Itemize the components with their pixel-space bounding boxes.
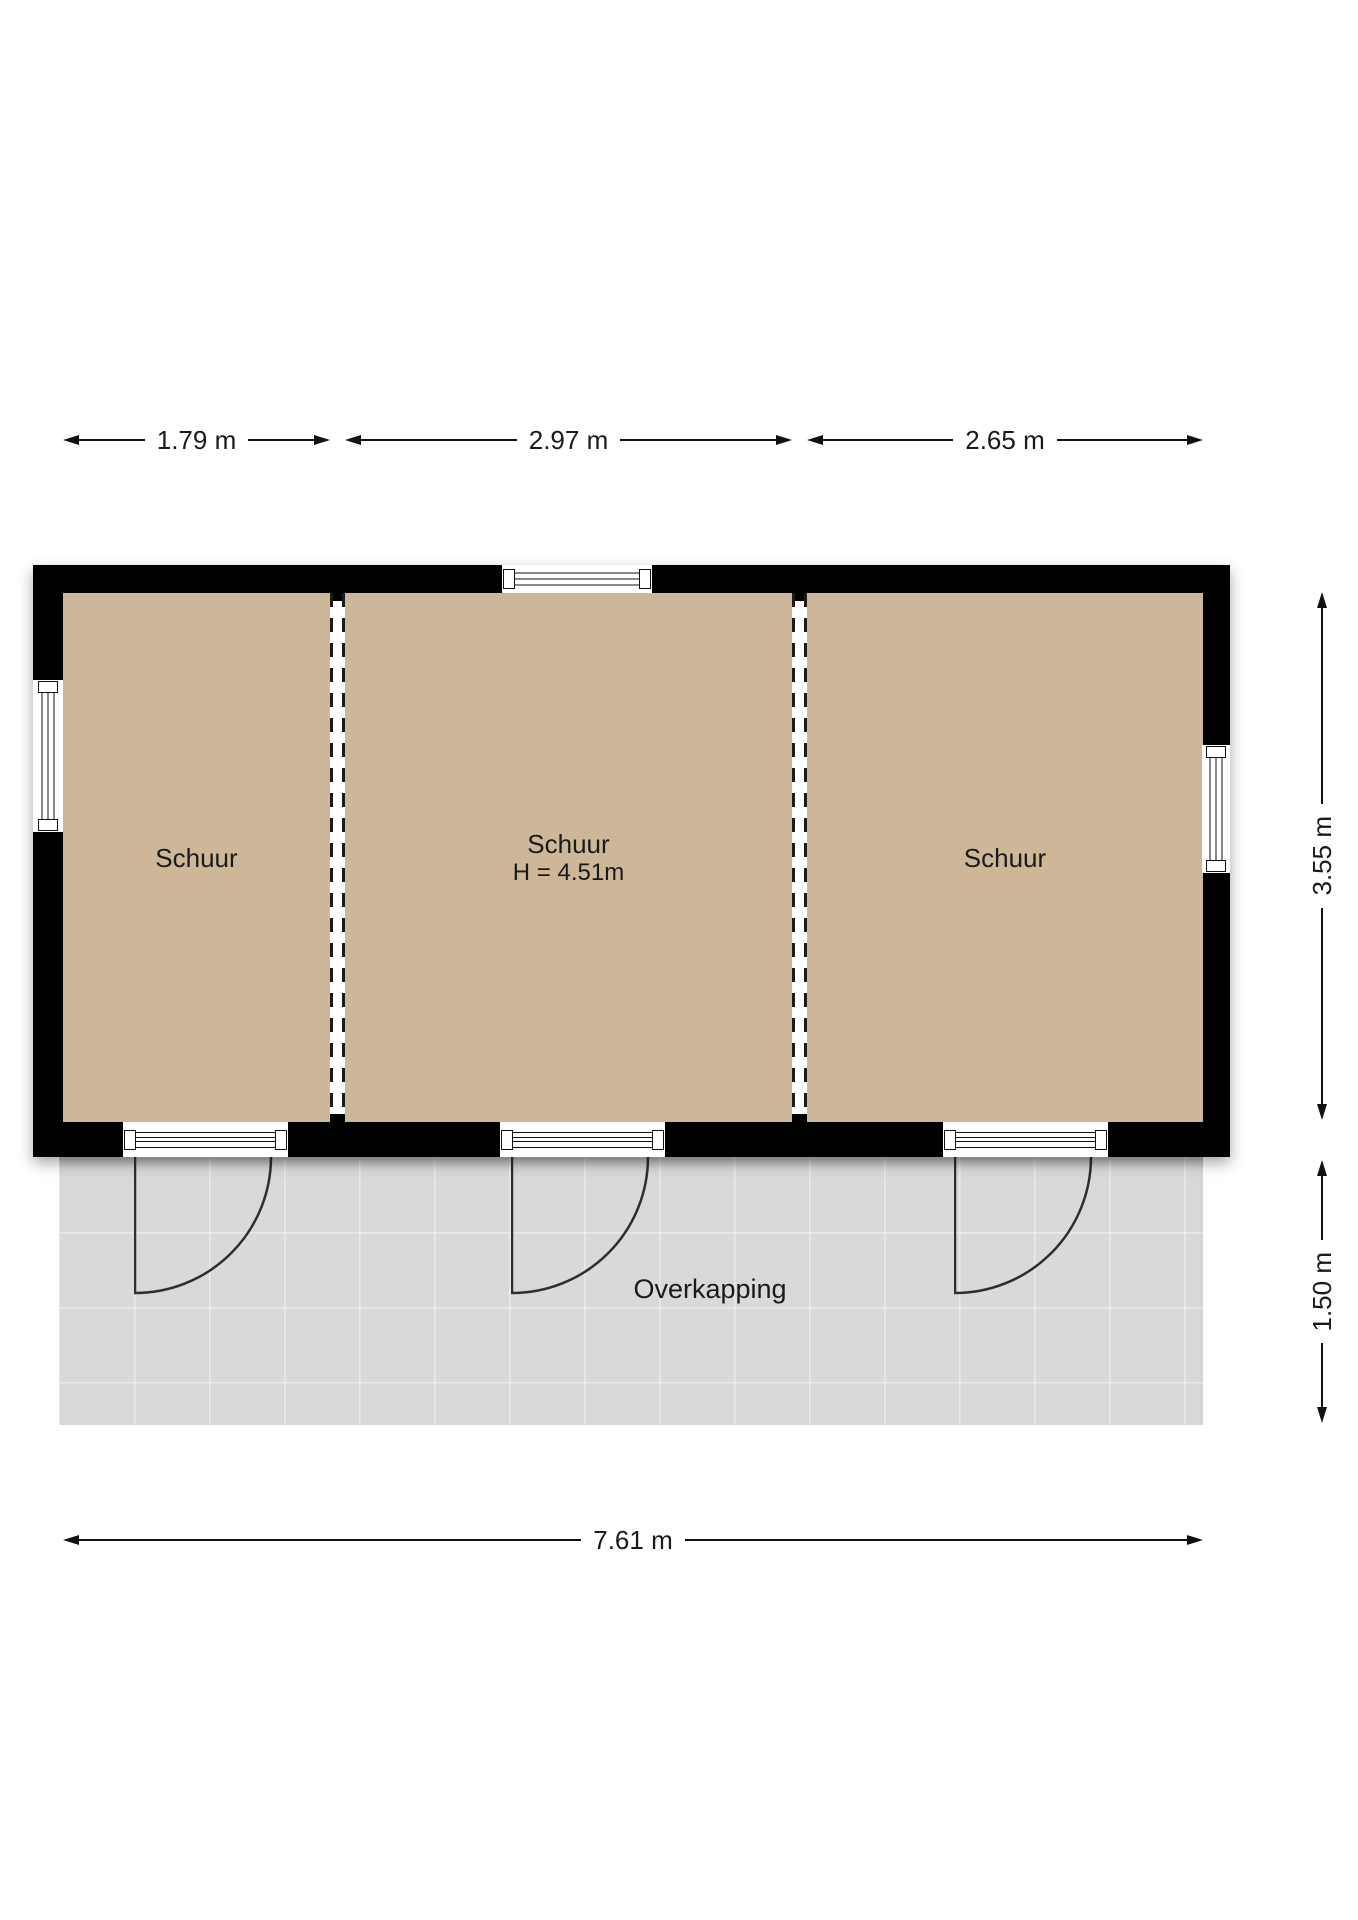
door-leaf-symbol bbox=[512, 1132, 653, 1148]
door-opening-right bbox=[943, 1122, 1108, 1157]
room-schuur-right: Schuur bbox=[807, 593, 1203, 1122]
dimension-line bbox=[1321, 908, 1323, 1104]
dimension-label: 2.65 m bbox=[953, 425, 1057, 456]
arrow-left-icon bbox=[807, 435, 823, 445]
dimension-label: 1.79 m bbox=[145, 425, 249, 456]
window-jamb bbox=[1206, 860, 1226, 872]
dimension-line bbox=[361, 439, 517, 441]
window-right bbox=[1202, 745, 1230, 873]
arrow-up-icon bbox=[1317, 592, 1327, 608]
arrow-right-icon bbox=[776, 435, 792, 445]
dimension-right-building-depth: 3.55 m bbox=[1308, 592, 1336, 1120]
canopy-label: Overkapping bbox=[560, 1274, 860, 1305]
dimension-line bbox=[248, 439, 314, 441]
partition-wall-right bbox=[792, 593, 807, 1122]
dimension-label: 7.61 m bbox=[581, 1525, 685, 1556]
dimension-line bbox=[79, 439, 145, 441]
dimension-line bbox=[1321, 1343, 1323, 1407]
door-jamb bbox=[275, 1130, 287, 1150]
door-leaf-symbol bbox=[955, 1132, 1096, 1148]
arrow-right-icon bbox=[1187, 1535, 1203, 1545]
dimension-line bbox=[620, 439, 776, 441]
door-leaf-symbol bbox=[135, 1132, 276, 1148]
arrow-right-icon bbox=[314, 435, 330, 445]
room-schuur-left: Schuur bbox=[63, 593, 330, 1122]
door-jamb bbox=[1095, 1130, 1107, 1150]
floor-plan-sheet: 1.79 m 2.97 m 2.65 m Overkapping Schuur bbox=[0, 0, 1358, 1920]
dimension-right-canopy-depth: 1.50 m bbox=[1308, 1160, 1336, 1423]
door-opening-left bbox=[123, 1122, 288, 1157]
dimension-top-left-room: 1.79 m bbox=[63, 426, 330, 454]
dashed-wall-line bbox=[330, 593, 333, 1122]
arrow-down-icon bbox=[1317, 1407, 1327, 1423]
room-label: Schuur bbox=[527, 829, 609, 859]
room-label: Schuur bbox=[964, 843, 1046, 873]
dimension-bottom-overall-width: 7.61 m bbox=[63, 1526, 1203, 1554]
dimension-line bbox=[1321, 1176, 1323, 1240]
window-pane bbox=[1210, 757, 1223, 861]
window-pane bbox=[514, 573, 640, 586]
room-label: Schuur bbox=[155, 843, 237, 873]
door-opening-middle bbox=[500, 1122, 665, 1157]
dimension-top-right-room: 2.65 m bbox=[807, 426, 1203, 454]
dimension-line bbox=[79, 1539, 581, 1541]
dimension-line bbox=[1057, 439, 1187, 441]
dimension-line bbox=[685, 1539, 1187, 1541]
dimension-label: 3.55 m bbox=[1307, 804, 1338, 908]
dimension-label: 2.97 m bbox=[517, 425, 621, 456]
partition-wall-left bbox=[330, 593, 345, 1122]
dimension-top-middle-room: 2.97 m bbox=[345, 426, 792, 454]
building-outline: Schuur Schuur H = 4.51m Schuur bbox=[33, 565, 1230, 1157]
arrow-down-icon bbox=[1317, 1104, 1327, 1120]
arrow-right-icon bbox=[1187, 435, 1203, 445]
window-pane bbox=[42, 692, 55, 820]
dashed-wall-line bbox=[792, 593, 795, 1122]
dimension-label: 1.50 m bbox=[1307, 1240, 1338, 1344]
dimension-line bbox=[1321, 608, 1323, 804]
dimension-line bbox=[823, 439, 953, 441]
arrow-left-icon bbox=[345, 435, 361, 445]
arrow-left-icon bbox=[63, 435, 79, 445]
arrow-up-icon bbox=[1317, 1160, 1327, 1176]
room-height-note: H = 4.51m bbox=[513, 859, 624, 887]
window-top bbox=[502, 565, 652, 593]
window-jamb bbox=[639, 569, 651, 589]
window-jamb bbox=[38, 819, 58, 831]
door-jamb bbox=[652, 1130, 664, 1150]
arrow-left-icon bbox=[63, 1535, 79, 1545]
window-left bbox=[33, 680, 63, 832]
room-schuur-middle: Schuur H = 4.51m bbox=[345, 593, 792, 1122]
